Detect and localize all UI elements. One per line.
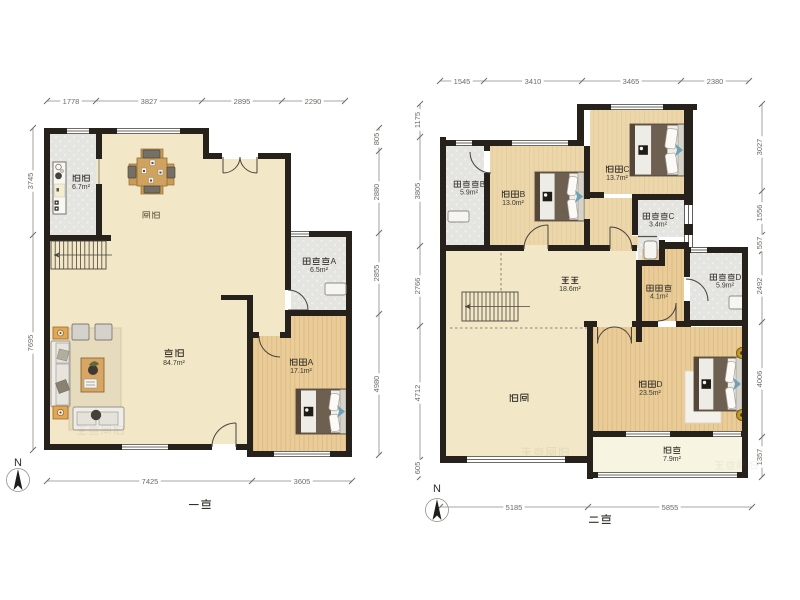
svg-text:4980: 4980 <box>372 376 381 393</box>
svg-text:6.5m²: 6.5m² <box>310 267 329 274</box>
svg-text:1778: 1778 <box>63 97 80 106</box>
svg-text:18.6m²: 18.6m² <box>559 286 581 293</box>
svg-text:805: 805 <box>372 133 381 146</box>
svg-text:7.9m²: 7.9m² <box>663 456 682 463</box>
svg-text:2855: 2855 <box>372 265 381 282</box>
svg-text:2895: 2895 <box>234 97 251 106</box>
svg-text:605: 605 <box>413 462 422 475</box>
svg-text:3805: 3805 <box>413 183 422 200</box>
svg-text:N: N <box>433 483 441 495</box>
svg-text:3465: 3465 <box>623 77 640 86</box>
svg-text:C: C <box>669 212 675 221</box>
svg-text:A: A <box>330 256 336 266</box>
svg-text:4712: 4712 <box>413 385 422 402</box>
svg-text:1556: 1556 <box>755 205 764 222</box>
svg-text:4.1m²: 4.1m² <box>650 294 669 301</box>
svg-text:5855: 5855 <box>662 503 679 512</box>
svg-text:5185: 5185 <box>506 503 523 512</box>
svg-text:23.5m²: 23.5m² <box>639 390 661 397</box>
svg-text:84.7m²: 84.7m² <box>163 360 185 367</box>
svg-text:D: D <box>736 273 742 282</box>
svg-text:4006: 4006 <box>755 371 764 388</box>
svg-text:3605: 3605 <box>294 477 311 486</box>
svg-text:1545: 1545 <box>454 77 471 86</box>
svg-text:1357: 1357 <box>755 449 764 466</box>
svg-text:3.4m²: 3.4m² <box>649 222 668 229</box>
svg-text:6.7m²: 6.7m² <box>72 184 91 191</box>
svg-text:B: B <box>480 180 485 189</box>
svg-text:D: D <box>656 379 662 389</box>
svg-text:17.1m²: 17.1m² <box>290 368 312 375</box>
svg-text:3027: 3027 <box>755 139 764 156</box>
svg-text:1175: 1175 <box>413 112 422 128</box>
svg-text:13.7m²: 13.7m² <box>606 175 628 182</box>
svg-text:2766: 2766 <box>413 278 422 295</box>
svg-text:7695: 7695 <box>26 335 35 352</box>
svg-text:5.9m²: 5.9m² <box>460 190 479 197</box>
svg-text:3410: 3410 <box>525 77 542 86</box>
svg-text:5.9m²: 5.9m² <box>716 283 735 290</box>
svg-text:C: C <box>623 164 629 174</box>
svg-text:2492: 2492 <box>755 278 764 295</box>
svg-text:A: A <box>308 357 314 367</box>
svg-text:2290: 2290 <box>305 97 322 106</box>
svg-text:7425: 7425 <box>142 477 159 486</box>
svg-text:557: 557 <box>755 237 764 250</box>
svg-text:3745: 3745 <box>26 173 35 190</box>
svg-text:13.0m²: 13.0m² <box>502 200 524 207</box>
svg-text:2380: 2380 <box>707 77 724 86</box>
svg-text:B: B <box>520 189 526 199</box>
svg-text:N: N <box>14 457 22 469</box>
svg-text:2880: 2880 <box>372 184 381 201</box>
svg-text:3827: 3827 <box>141 97 158 106</box>
